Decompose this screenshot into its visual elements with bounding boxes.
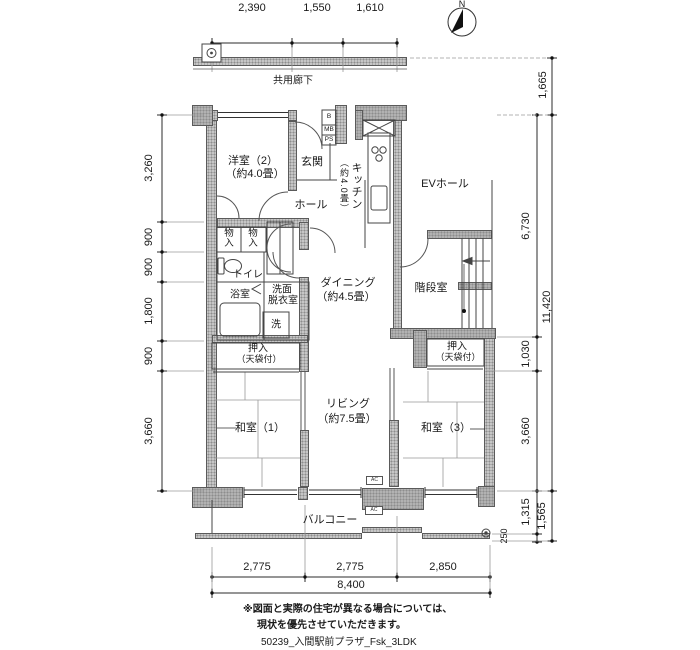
meter-b-label: B — [327, 114, 331, 121]
corridor-wall — [193, 57, 407, 66]
north-arrow-icon — [448, 8, 476, 36]
wall-segment — [299, 277, 309, 372]
wall-pier — [355, 110, 363, 140]
room-japanese1-label: 和室（1） — [235, 422, 285, 434]
wall-pier — [192, 105, 213, 126]
wall-segment — [298, 487, 308, 500]
wall-pier — [478, 486, 495, 507]
wall-segment — [212, 335, 308, 343]
wall-segment — [389, 420, 399, 487]
washer-label: 洗 — [271, 320, 281, 331]
wall-pier — [413, 330, 427, 368]
dim-right-inner-2: 1,030 — [520, 340, 532, 368]
dim-top-2: 1,550 — [303, 2, 331, 14]
wall-segment — [484, 330, 495, 488]
closet-left-note: （天袋付） — [236, 355, 281, 365]
dim-right-inner-1: 6,730 — [520, 212, 532, 240]
dim-right-inner-4: 1,315 — [520, 498, 532, 526]
meter-mb-label: MB — [324, 127, 334, 134]
dim-left-4: 1,800 — [143, 297, 155, 325]
dim-left-6: 3,660 — [143, 417, 155, 445]
closet-left-name: 押入 — [248, 344, 268, 355]
balcony-rail — [362, 527, 422, 533]
storage-label: 物入 — [247, 229, 259, 249]
room-living-name: リビング — [326, 398, 370, 410]
room-kitchen-name: キッチン — [350, 162, 362, 210]
room-hall-label: ホール — [295, 199, 328, 211]
balcony-rail — [422, 533, 490, 539]
plan-code: 50239_入間駅前プラザ_Fsk_3LDK — [261, 633, 417, 648]
wall-segment — [393, 120, 402, 336]
room-living-size: （約7.5畳） — [317, 413, 376, 425]
room-western2-size: （約4.0畳） — [225, 168, 284, 180]
dim-left-5: 900 — [143, 347, 155, 365]
ac-unit-label: AC — [365, 506, 383, 515]
dim-right-outer-1: 1,665 — [537, 71, 549, 99]
room-ev-hall-label: EVホール — [421, 178, 469, 190]
disclaimer-line2: 現状を優先させていただきます。 — [257, 616, 406, 631]
room-japanese3-label: 和室（3） — [421, 422, 471, 434]
meter-ps-label: PS — [325, 137, 334, 144]
dim-bottom-total: 8,400 — [337, 579, 365, 591]
room-washroom-line1: 洗面 — [272, 285, 292, 296]
corridor-label: 共用廊下 — [273, 76, 313, 87]
wall-pier — [192, 487, 243, 508]
wall-segment — [217, 218, 309, 228]
plan-linework — [0, 0, 700, 650]
dim-right-inner-5: 250 — [500, 528, 510, 543]
wall-segment — [288, 110, 297, 121]
stair-wall — [390, 328, 496, 339]
dim-top-1: 2,390 — [238, 2, 266, 14]
dim-bottom-1: 2,775 — [243, 561, 271, 573]
dim-bottom-2: 2,775 — [336, 561, 364, 573]
wall-segment — [300, 430, 309, 487]
room-bath-label: 浴室 — [230, 290, 250, 301]
dim-bottom-3: 2,850 — [429, 561, 457, 573]
wall-segment — [206, 110, 217, 491]
dim-left-1: 3,260 — [143, 154, 155, 182]
balcony-rail — [195, 533, 362, 539]
north-label: N — [459, 0, 466, 10]
dim-right-outer-2: 11,420 — [541, 291, 553, 324]
room-kitchen-size: （約4.0畳） — [338, 158, 348, 214]
room-entrance-label: 玄関 — [301, 156, 323, 168]
stair-wall — [427, 230, 492, 239]
room-dining-size: （約4.5畳） — [316, 291, 375, 303]
ac-unit-label: AC — [366, 476, 383, 485]
storage-label: 物入 — [223, 229, 235, 249]
wall-segment — [299, 222, 309, 250]
dim-left-2: 900 — [143, 228, 155, 246]
balcony-label: バルコニー — [303, 514, 358, 526]
dim-right-outer-3: 1,565 — [536, 502, 548, 530]
room-stairwell-label: 階段室 — [415, 282, 448, 294]
wall-segment — [335, 105, 347, 144]
dim-right-inner-3: 3,660 — [520, 417, 532, 445]
closet-right-note: （天袋付） — [435, 353, 480, 363]
floor-plan: 2,390 1,550 1,610 N 共用廊下 3,260 900 900 1… — [0, 0, 700, 650]
wall-segment — [288, 121, 297, 191]
room-dining-name: ダイニング — [321, 277, 376, 289]
closet-right-name: 押入 — [447, 342, 467, 353]
room-western2-name: 洋室（2） — [228, 155, 278, 167]
stair-landing — [458, 282, 492, 290]
room-toilet-label: トイレ — [233, 270, 263, 281]
dim-left-3: 900 — [143, 258, 155, 276]
dim-top-3: 1,610 — [356, 2, 384, 14]
room-washroom-line2: 脱衣室 — [268, 296, 298, 307]
disclaimer-line1: ※図面と実際の住宅が異なる場合については、 — [243, 600, 452, 615]
